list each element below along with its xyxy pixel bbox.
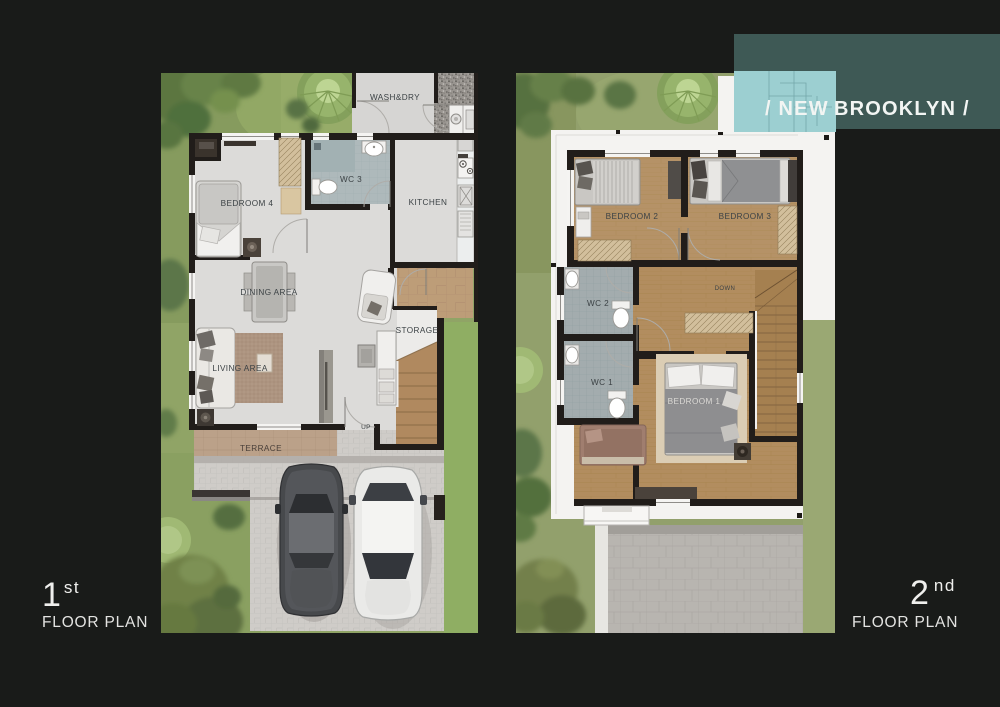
- svg-text:BEDROOM 2: BEDROOM 2: [606, 212, 659, 221]
- svg-text:WASH&DRY: WASH&DRY: [370, 93, 420, 102]
- svg-text:TERRACE: TERRACE: [240, 444, 282, 453]
- svg-text:WC 1: WC 1: [591, 378, 613, 387]
- svg-text:DOWN: DOWN: [715, 286, 736, 292]
- svg-text:STORAGE: STORAGE: [396, 326, 439, 335]
- svg-text:BEDROOM 1: BEDROOM 1: [668, 397, 721, 406]
- svg-text:UP: UP: [361, 424, 371, 431]
- svg-text:BEDROOM 4: BEDROOM 4: [221, 199, 274, 208]
- svg-text:WC 3: WC 3: [340, 175, 362, 184]
- svg-text:KITCHEN: KITCHEN: [409, 198, 448, 207]
- svg-text:DINING AREA: DINING AREA: [240, 288, 297, 297]
- svg-text:BEDROOM 3: BEDROOM 3: [719, 212, 772, 221]
- svg-text:LIVING AREA: LIVING AREA: [212, 364, 268, 373]
- svg-text:WC 2: WC 2: [587, 299, 609, 308]
